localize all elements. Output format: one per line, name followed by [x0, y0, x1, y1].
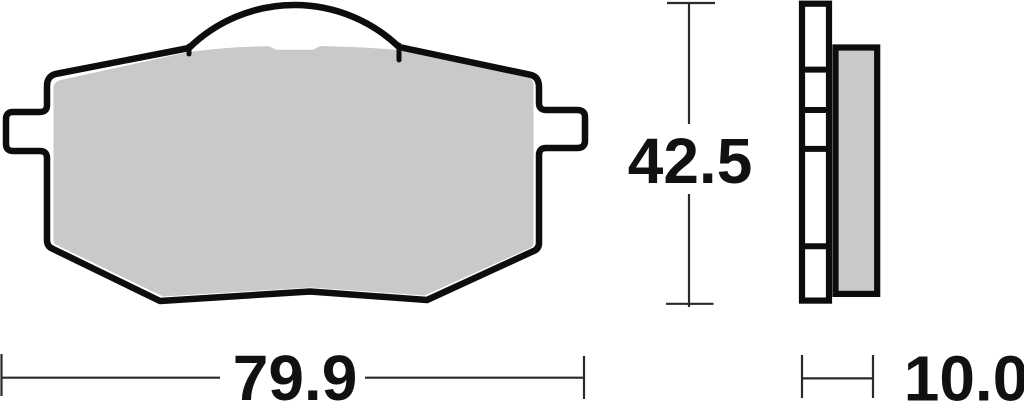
svg-text:10.0: 10.0 — [904, 343, 1024, 405]
svg-text:42.5: 42.5 — [628, 125, 753, 197]
svg-text:79.9: 79.9 — [233, 342, 358, 405]
